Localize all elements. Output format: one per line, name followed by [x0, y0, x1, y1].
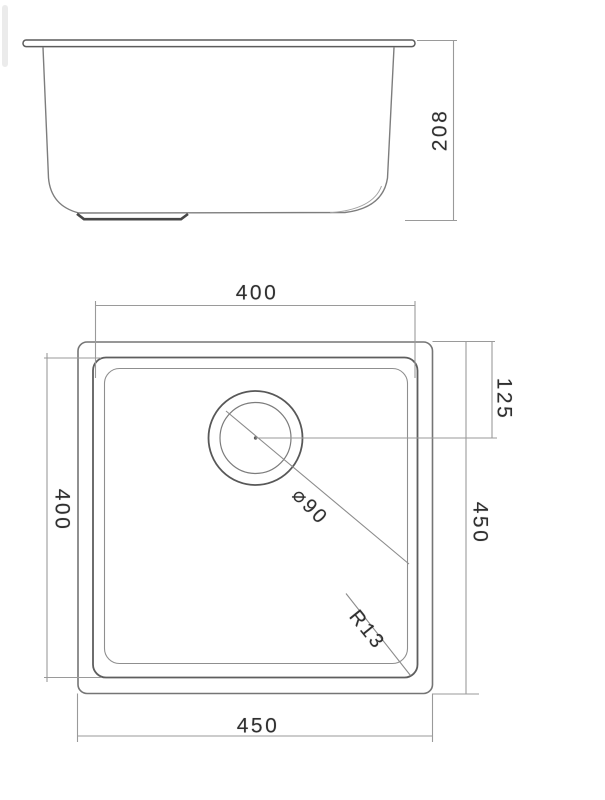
plan-view — [44, 301, 497, 742]
side-view — [23, 40, 457, 221]
plan-left-height-dimension-label: 400 — [52, 489, 73, 532]
drain-diameter-line — [226, 411, 409, 564]
drain-offset-dimension-label: 125 — [494, 378, 515, 421]
dimension-top-400 — [96, 301, 416, 378]
side-height-dimension-label: 208 — [430, 109, 451, 152]
side-view-bowl-outline — [43, 48, 394, 214]
dimension-125 — [256, 342, 498, 439]
plan-top-width-dimension-label: 400 — [236, 283, 279, 304]
plan-bottom-width-dimension-label: 450 — [237, 716, 280, 737]
side-view-inner-curve — [330, 186, 382, 213]
side-view-drain-foot — [77, 214, 188, 219]
technical-drawing-page: 208 400 400 125 450 450 ⌀90 R13 — [0, 0, 605, 800]
side-view-rim-flange — [23, 40, 415, 47]
plan-right-height-dimension-label: 450 — [470, 502, 491, 545]
